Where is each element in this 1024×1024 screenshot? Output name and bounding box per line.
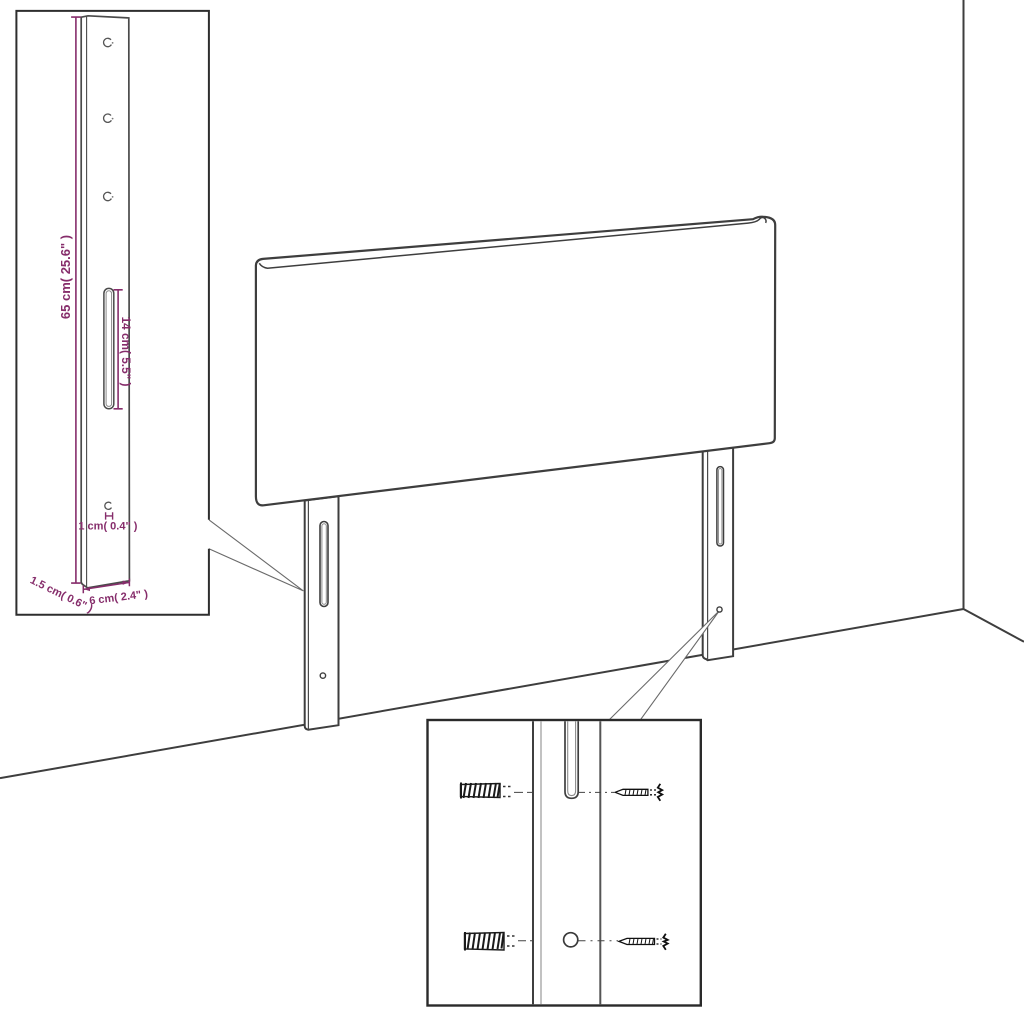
svg-text:1 cm( 0.4" ): 1 cm( 0.4" ) bbox=[78, 521, 137, 533]
svg-text:65 cm( 25.6" ): 65 cm( 25.6" ) bbox=[58, 235, 73, 319]
svg-text:14 cm( 5.5" ): 14 cm( 5.5" ) bbox=[119, 317, 133, 387]
